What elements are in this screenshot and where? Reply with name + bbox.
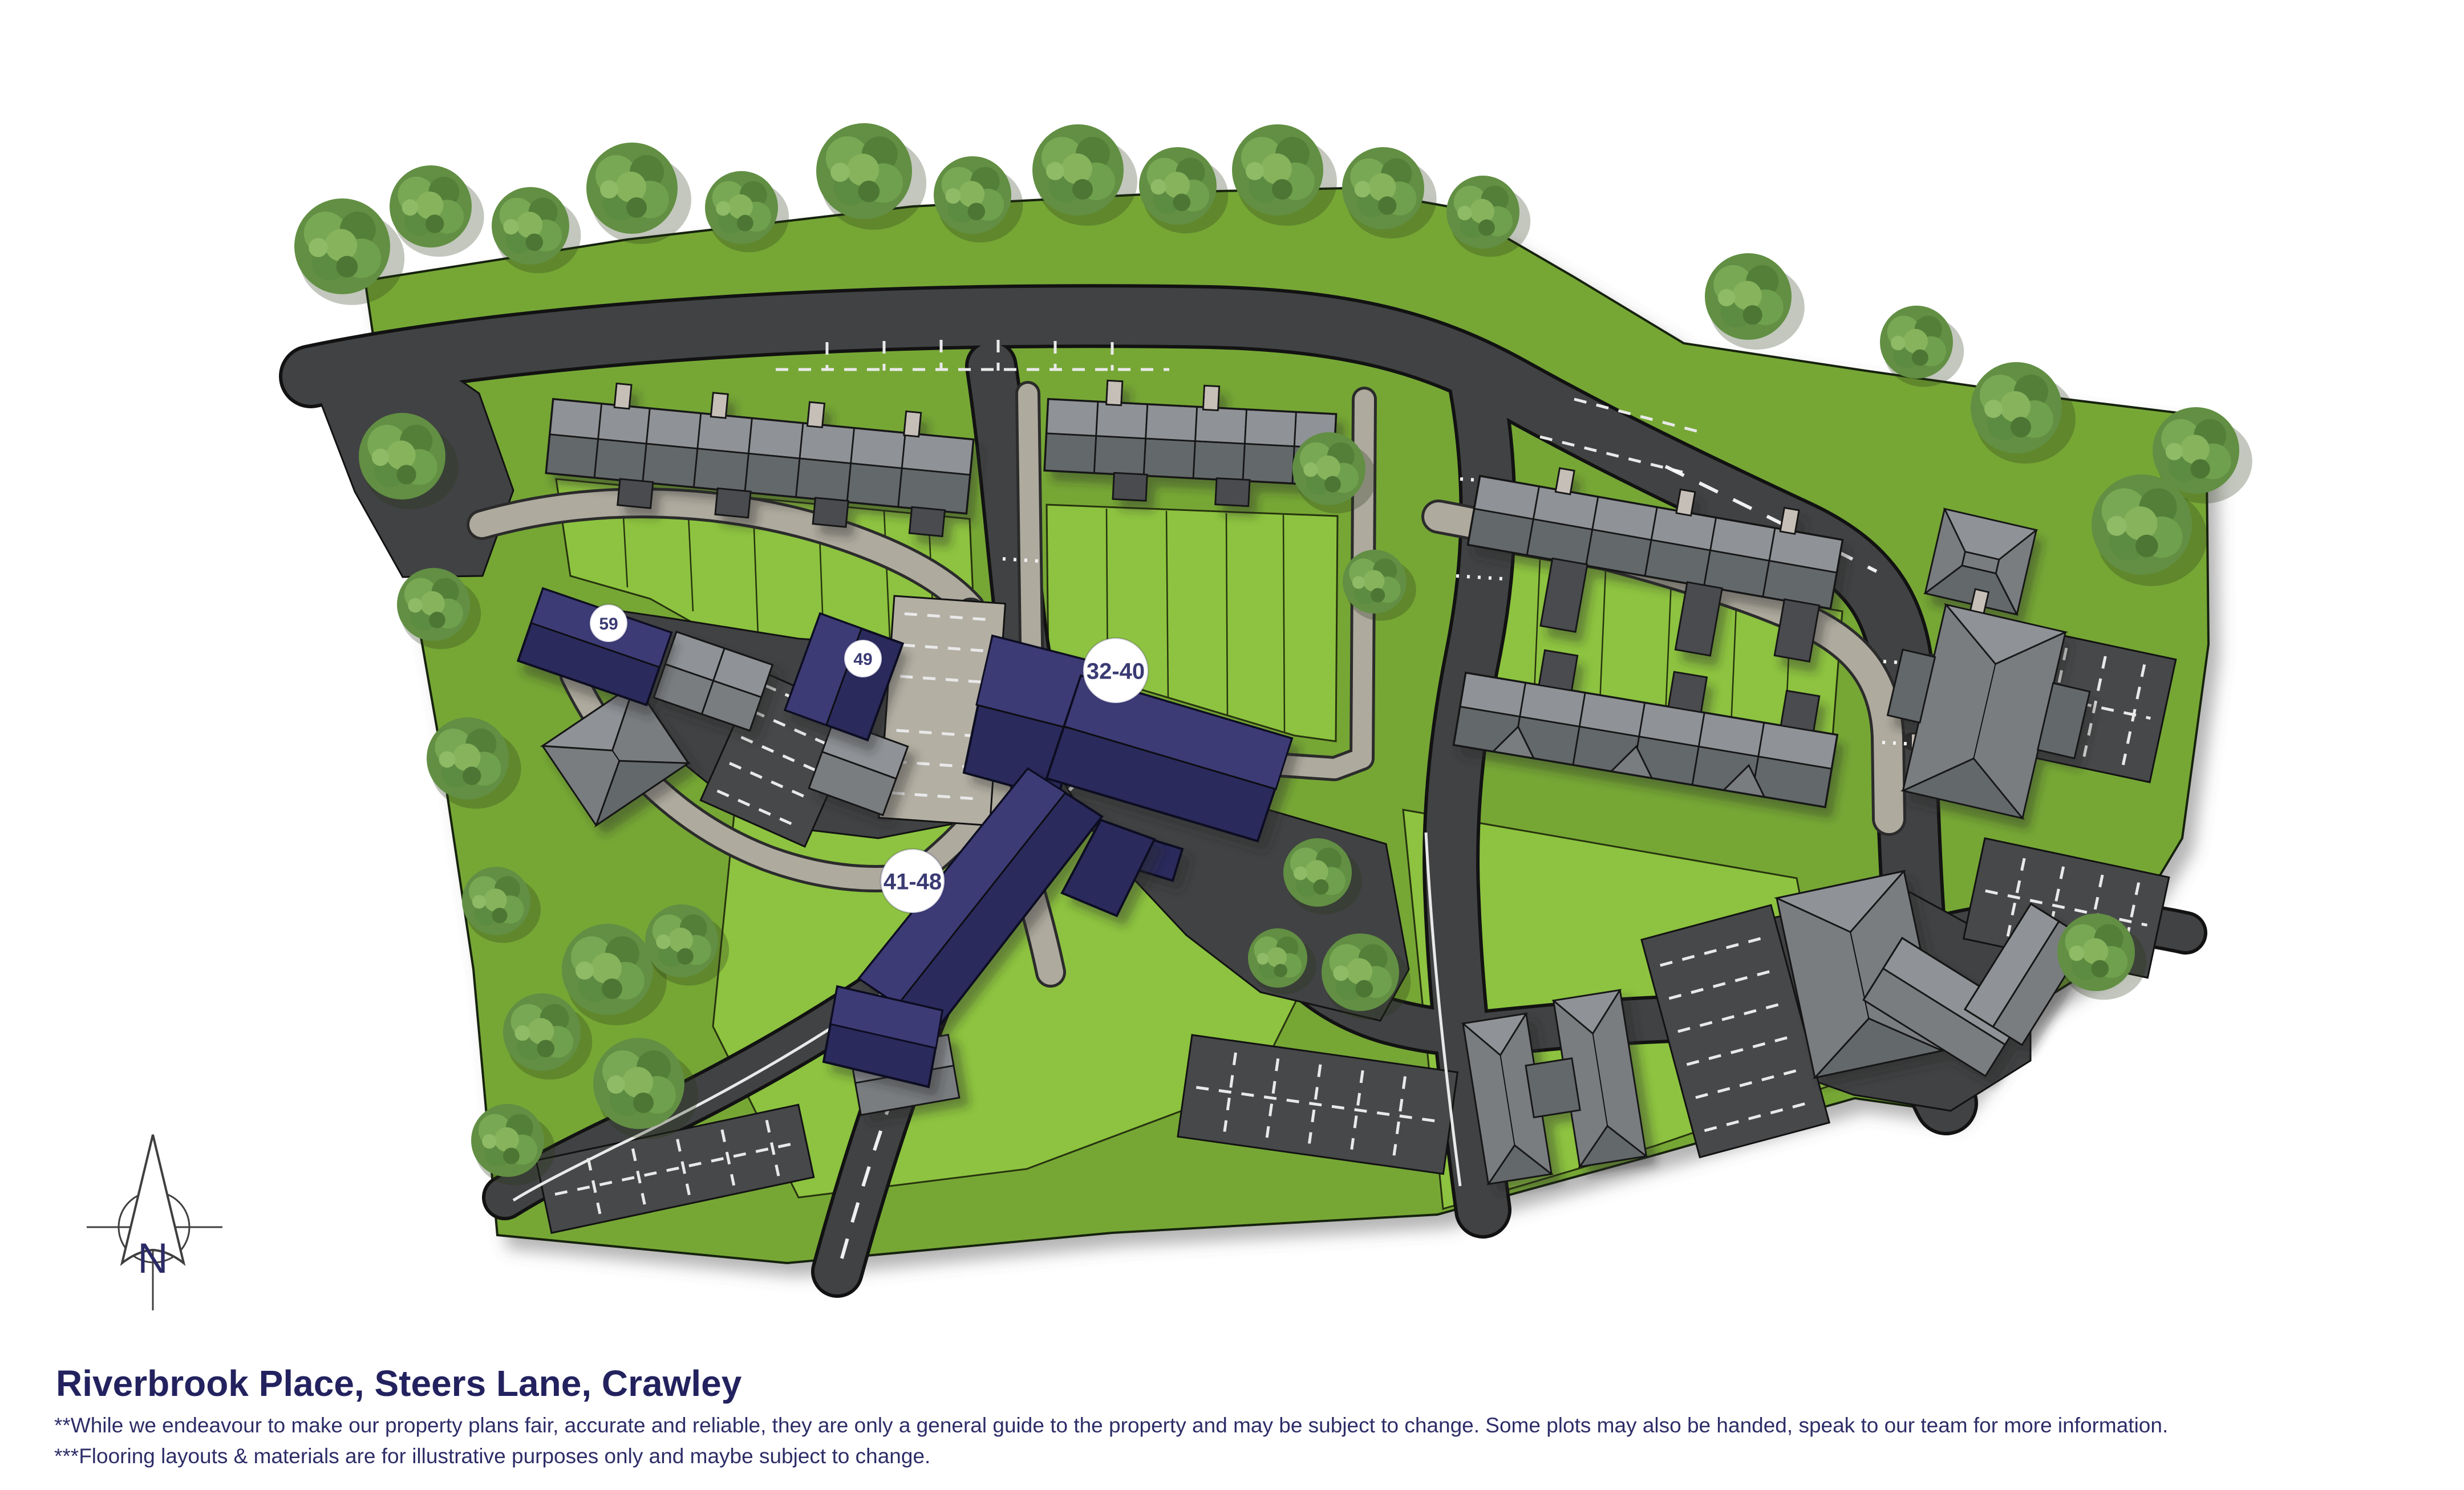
plot-marker-label: 59 bbox=[599, 615, 618, 634]
plot-marker-32-40[interactable]: 32-40 bbox=[1083, 638, 1148, 703]
plot-marker-49[interactable]: 49 bbox=[844, 640, 882, 677]
plot-marker-label: 32-40 bbox=[1087, 659, 1145, 684]
plot-marker-label: 49 bbox=[853, 650, 872, 669]
plot-marker-59[interactable]: 59 bbox=[590, 604, 627, 642]
disclaimer-line-1: **While we endeavour to make our propert… bbox=[54, 1414, 2168, 1437]
plot-marker-41-48[interactable]: 41-48 bbox=[881, 849, 945, 913]
compass: N bbox=[87, 1135, 222, 1310]
compass-label: N bbox=[137, 1235, 168, 1282]
plot-marker-label: 41-48 bbox=[884, 869, 942, 894]
site-plan-canvas: 594932-4041-48 N Riverbrook Place, Steer… bbox=[0, 0, 2464, 1490]
page-title: Riverbrook Place, Steers Lane, Crawley bbox=[56, 1363, 742, 1404]
disclaimer-line-2: ***Flooring layouts & materials are for … bbox=[54, 1444, 930, 1468]
site-map: 594932-4041-48 N Riverbrook Place, Steer… bbox=[0, 0, 2464, 1490]
